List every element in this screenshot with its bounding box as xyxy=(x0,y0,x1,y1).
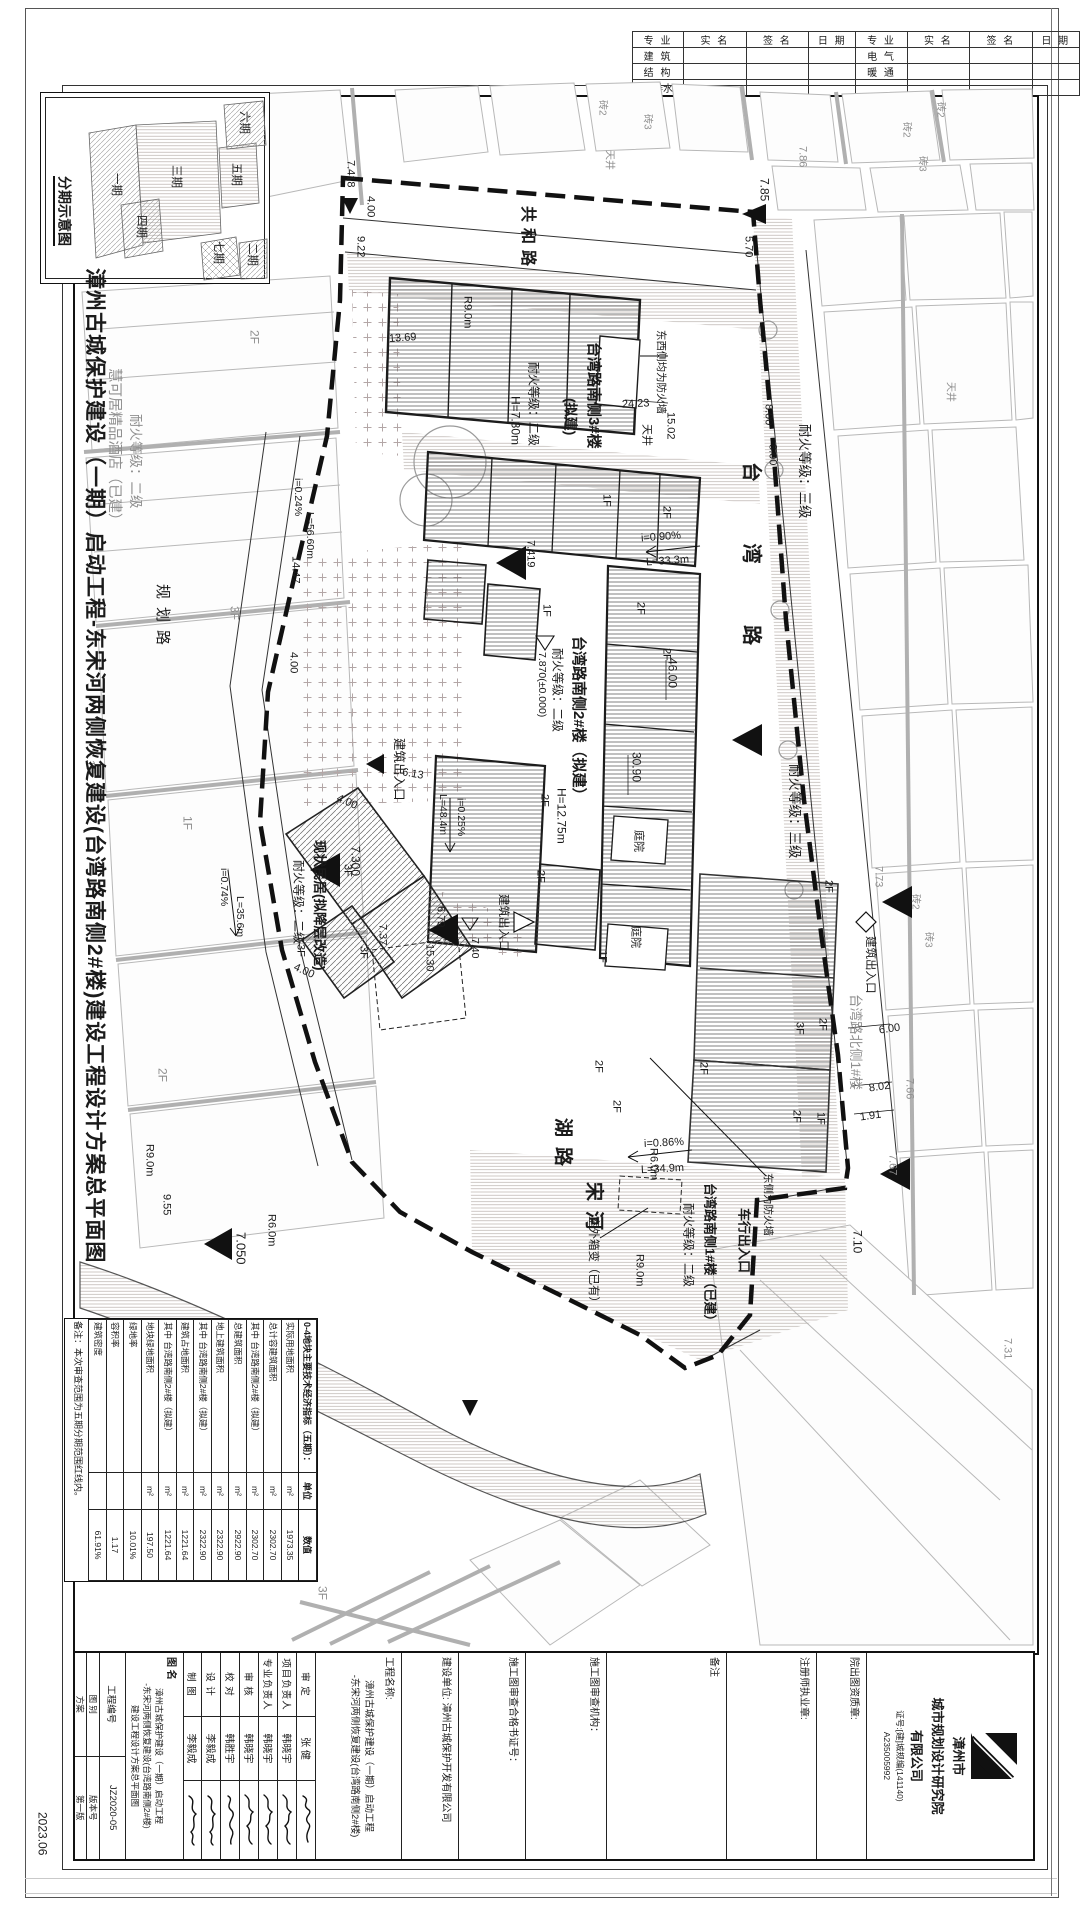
road-label-gonghe: 共和路 xyxy=(518,206,535,272)
floor-1f-b: 1F xyxy=(600,494,612,507)
level-786: 7.86 xyxy=(796,146,808,167)
remark-cell: 备注 xyxy=(606,1653,726,1859)
indicators-title: 0-4地块主要技术经济指标（五期）： xyxy=(299,1320,317,1473)
floor-2f-b1a: 2F xyxy=(816,1018,828,1031)
slope-l333: L=33.3m xyxy=(646,555,690,570)
bldg3-height: H=7.30m xyxy=(509,396,522,445)
level-785: 7.85 xyxy=(758,178,771,201)
phasing-inset-title: 分期示意图 xyxy=(53,176,72,246)
category-value: 方案 xyxy=(75,1653,86,1756)
hotel-fire-rating: 耐火等级：二级 xyxy=(128,414,142,509)
drawing-title-cell: 图 名 漳州古城保护建设（一期）启动工程 -东宋河两侧恢复建设(台湾路南侧2#楼… xyxy=(125,1653,183,1859)
indicators-table: 0-4地块主要技术经济指标（五期）： 单位 数值 实际用地面积m²1973.35… xyxy=(64,1318,318,1582)
brick3-east-b: 砖3 xyxy=(922,932,933,948)
plan-labels: 共和路 台 湾 路 规划路 湖路 宋河 台湾路南侧3#楼 (拟建) 耐火等级：二… xyxy=(0,0,1080,1906)
titleblock: 漳州市 城市规划设计研究院 有限公司 证号:[建]城规编(141140) A23… xyxy=(73,1651,1035,1861)
staff-row-xiangmu: 项目负责人韩晓宇 xyxy=(277,1653,296,1859)
slope-l484: L=48.4m xyxy=(437,794,448,835)
company-name-3: 有限公司 xyxy=(908,1730,927,1782)
floor-3f-grey-a: 3F xyxy=(228,606,241,620)
indicators-wrap: 0-4地块主要技术经济指标（五期）： 单位 数值 实际用地面积m²1973.35… xyxy=(64,1318,318,1582)
indicator-row: 其中 台湾路南侧2#楼（拟建）m²2322.90 xyxy=(194,1320,212,1581)
registered-seal-cell: 注册师执业章: xyxy=(726,1653,816,1859)
project-name-line2: -东宋河两侧恢复建设(台湾路南侧2#楼) xyxy=(349,1657,363,1855)
dim-1-91: 1.91 xyxy=(859,1110,882,1124)
bldg3-sub: (拟建) xyxy=(563,398,578,435)
floor-2f-c: 2F xyxy=(538,794,550,807)
lightwell-label: 天井 xyxy=(640,424,652,446)
signature-scribble xyxy=(223,1792,238,1848)
brick2-east-b: 砖2 xyxy=(934,102,945,118)
brick2-top-a: 砖2 xyxy=(596,100,607,116)
dim-46-00: 46.00 xyxy=(666,658,679,688)
review-org-cell: 施工图审查机构： xyxy=(525,1653,606,1859)
sheet-date: 2023.06 xyxy=(36,1812,49,1855)
drawing-title-line3: 建设工程设计方案总平面图 xyxy=(129,1657,141,1855)
indicator-row: 地上建筑面积m²2322.90 xyxy=(212,1320,230,1581)
level-740: 7.40 xyxy=(469,938,480,958)
floor-3f-b1: 3F xyxy=(793,1022,805,1035)
staff-row-shenhe: 审 核韩晓宇 xyxy=(239,1653,258,1859)
dim-30-90: 30.90 xyxy=(630,752,643,782)
side-title: 漳州古城保护建设（一期）启动工程-东宋河两侧恢复建设(台湾路南侧2#楼)建设工程… xyxy=(80,268,108,1340)
drawing-sheet: { "sig_table": { "headers": ["专 业","实 名"… xyxy=(0,0,1080,1906)
indicator-row: 实际用地面积m²1973.35 xyxy=(282,1320,300,1581)
radius-r90-c: R9.0m xyxy=(633,1254,645,1286)
signature-scribble xyxy=(185,1792,200,1848)
radius-r60-b: R6.0m xyxy=(265,1214,277,1246)
indicators-col-value: 数值 xyxy=(299,1510,317,1581)
staff-row-zhuanye: 专业负责人韩晓宇 xyxy=(258,1653,277,1859)
floor-2f-grey-b: 2F xyxy=(156,1068,169,1082)
dim-15-30: 15.30 xyxy=(423,944,435,972)
staff-row-shending: 审 定张 健 xyxy=(296,1653,315,1859)
north-bldg1-label: 台湾路北侧1#楼 xyxy=(848,994,862,1090)
project-name-label: 工程名称: xyxy=(383,1657,398,1855)
slope-i025: i=0.25% xyxy=(455,798,466,836)
indicator-row: 建筑占地面积m²1221.64 xyxy=(177,1320,195,1581)
floor-2f-b1b: 2F xyxy=(822,880,834,893)
bldg3-fire-rating: 耐火等级：二级 xyxy=(527,362,540,446)
level-731: 7.31 xyxy=(1001,1338,1013,1359)
level-7419: 7.419 xyxy=(524,540,536,568)
firewall-both-note: 东西侧均为防火墙 xyxy=(655,330,666,414)
slope-i074: i=0.74% xyxy=(218,868,229,906)
floor-3f-dwelling-a: 3F xyxy=(341,864,353,877)
version-value: 第一版 xyxy=(75,1757,86,1860)
indicator-row: 绿地率10.01% xyxy=(124,1320,142,1581)
bldg3-name: 台湾路南侧3#楼 xyxy=(585,342,601,449)
brick2-east-c: 砖2 xyxy=(909,894,920,910)
company-name-2: 城市规划设计研究院 xyxy=(929,1697,948,1814)
slope-l356: L=35.6m xyxy=(234,896,245,937)
floor-2f-e: 2F xyxy=(660,648,672,661)
floor-2f-a: 2F xyxy=(634,602,646,615)
phase-2-label: 二期 xyxy=(245,243,261,266)
level-767: 7.67 xyxy=(886,1154,898,1175)
transformer-label: 室外箱变（已有） xyxy=(587,1216,599,1308)
firewall-east-note: 东侧为防火墙 xyxy=(762,1173,773,1236)
floor-2f-b1c: 2F xyxy=(697,1062,709,1075)
company-cert-2: A235005992 xyxy=(882,1732,892,1780)
floor-1f-a: 1F xyxy=(540,604,552,617)
signature-scribble xyxy=(261,1792,276,1848)
version-label: 版本号 xyxy=(86,1757,99,1860)
dim-24-23: 24.23 xyxy=(622,398,650,411)
floor-1f-grey-b: 1F xyxy=(181,816,194,830)
entrance-west-label: 建筑出入口 xyxy=(392,738,405,801)
signature-scribble xyxy=(204,1792,219,1848)
dwellings-fire-rating: 耐火等级：二级 xyxy=(292,860,305,944)
signature-scribble xyxy=(280,1792,295,1848)
project-name-line1: 漳州古城保护建设（一期）启动工程 xyxy=(363,1657,377,1855)
level-710: 7.10 xyxy=(851,1230,864,1253)
slope-i024: i=0.24% xyxy=(292,478,303,516)
dim-6-79: 6.79 xyxy=(434,906,446,927)
level-7418: 7.418 xyxy=(344,160,356,188)
phasing-inset: 分期示意图 一期 三期 四期 五期 六期 七期 二期 xyxy=(40,92,270,284)
floor-2f-b1f: 2F xyxy=(790,1110,802,1123)
road-label-taiwan: 台 湾 路 xyxy=(740,462,761,673)
floor-2f-b: 2F xyxy=(660,506,672,519)
phase-1-label: 一期 xyxy=(109,173,125,196)
indicator-row: 总计容建筑面积m²2302.70 xyxy=(264,1320,282,1581)
floor-1f-b1: 1F xyxy=(814,1112,826,1125)
indicators-note: 备注：本次审查范围为五期分期范围红线内。 xyxy=(70,1319,89,1581)
bldg2-fire-rating: 耐火等级：二级 xyxy=(551,648,564,732)
hotel-name: 慧可居精品酒店（已建） xyxy=(106,368,121,528)
radius-r90-a: R9.0m xyxy=(461,296,473,328)
institute-seal-cell: 院出图资质章: xyxy=(816,1653,866,1859)
dim-9-55: 9.55 xyxy=(160,1194,172,1215)
dim-8-00-a: 8.00 xyxy=(762,404,774,425)
client-cell: 建设单位: 漳州古城保护开发有限公司 xyxy=(401,1653,459,1859)
courtyard-b: 庭院 xyxy=(632,830,644,852)
indicator-row: 地块绿地面积m²197.50 xyxy=(142,1320,160,1581)
level-773: 7.73 xyxy=(872,866,884,887)
project-number-label: 工程编号 xyxy=(100,1653,125,1757)
radius-r60-a: R6.0m xyxy=(647,1148,659,1180)
drawing-title-label: 图 名 xyxy=(165,1657,176,1680)
indicator-row: 其中 台湾路南侧2#楼（拟建）m²2302.70 xyxy=(247,1320,265,1581)
radius-r90-b: R9.0m xyxy=(143,1144,155,1176)
floor-3f-grey-b: 3F xyxy=(316,1586,329,1600)
phasing-inset-svg xyxy=(41,93,269,283)
floor-2f-d: 2F xyxy=(534,870,546,883)
dim-4-00-b: 4.00 xyxy=(335,793,359,812)
brick2-east-a: 砖2 xyxy=(900,122,911,138)
indicator-row: 总建筑面积m²2922.90 xyxy=(229,1320,247,1581)
project-number-value: JZ2020-05 xyxy=(100,1757,125,1860)
fire-rating-3-east-a: 耐火等级：三级 xyxy=(797,424,811,519)
phase-7-label: 七期 xyxy=(211,241,227,264)
category-label: 图 别 xyxy=(86,1653,99,1756)
dwellings-name: 现状民居(拟降层改造) xyxy=(312,840,326,971)
indicator-row: 其中 台湾路南侧2#楼（拟建）m²1221.64 xyxy=(159,1320,177,1581)
dim-4-00-a: 4.00 xyxy=(364,196,376,217)
lightwell-east: 天井 xyxy=(944,382,955,402)
drawing-title-line2: -东宋河两侧恢复建设(台湾路南侧2#楼) xyxy=(141,1657,153,1855)
category-version-cell: 图 别 方案 版本号 第一版 xyxy=(75,1653,99,1859)
floor-2f-grey-a: 2F xyxy=(248,330,261,344)
floor-2f-b1d: 2F xyxy=(592,1060,604,1073)
floor-3f-dwelling-b: 3F xyxy=(294,944,306,957)
indicator-row: 建筑密度61.91% xyxy=(89,1320,107,1581)
company-name-1: 漳州市 xyxy=(950,1736,969,1775)
fire-rating-3-east-b: 耐火等级：三级 xyxy=(787,764,801,859)
dim-5-70: 5.70 xyxy=(742,236,754,257)
signature-scribble xyxy=(299,1792,314,1848)
floor-3f-dwelling-c: 3F xyxy=(357,946,369,959)
entrance-south-label: 建筑出入口 xyxy=(497,894,509,952)
phase-4-label: 四期 xyxy=(134,215,150,238)
bldg2-name: 台湾路南侧2#楼（拟建） xyxy=(570,636,586,803)
dim-8-00-b: 8.00 xyxy=(766,444,778,465)
side-title-wrap: 漳州古城保护建设（一期）启动工程-东宋河两侧恢复建设(台湾路南侧2#楼)建设工程… xyxy=(80,268,108,1340)
floor-1f-b2: 1F xyxy=(596,950,608,963)
staff-row-sheji: 设 计李毅成 xyxy=(201,1653,220,1859)
dim-8-02: 8.02 xyxy=(868,1081,891,1095)
brick3-top: 砖3 xyxy=(641,114,652,130)
client-value: 漳州古城保护开发有限公司 xyxy=(440,1703,451,1823)
company-cell: 漳州市 城市规划设计研究院 有限公司 证号:[建]城规编(141140) A23… xyxy=(866,1653,1033,1859)
company-cert-1: 证号:[建]城规编(141140) xyxy=(894,1710,906,1801)
brick3-east: 砖3 xyxy=(916,156,927,172)
client-label: 建设单位: xyxy=(440,1657,451,1700)
dim-15-02: 15.02 xyxy=(664,412,676,440)
dim-4-00-d: 4.00 xyxy=(287,652,299,673)
road-label-guihua: 规划路 xyxy=(154,584,170,653)
phase-3-label: 三期 xyxy=(169,165,185,188)
bldg1-name: 台湾路南侧1#楼（已建） xyxy=(703,1183,717,1327)
phase-5-label: 五期 xyxy=(229,163,245,186)
staff-row-zhitu: 制 图李毅成 xyxy=(183,1653,202,1859)
slope-l566: L=56.60m xyxy=(304,512,315,559)
project-name-cell: 工程名称: 漳州古城保护建设（一期）启动工程 -东宋河两侧恢复建设(台湾路南侧2… xyxy=(315,1653,401,1859)
review-cert-cell: 施工图审查合格书证号： xyxy=(458,1653,525,1859)
dim-13-69: 13.69 xyxy=(389,332,417,345)
level-737: 7.37 xyxy=(376,924,388,945)
drawing-title-line1: 漳州古城保护建设（一期）启动工程 xyxy=(153,1657,165,1855)
vehicle-entrance-label: 车行出入口 xyxy=(737,1208,751,1273)
entrance-east-label: 建筑出入口 xyxy=(864,936,876,994)
dim-14-47: 14.47 xyxy=(289,556,301,584)
slope-i090: i=0.90% xyxy=(641,531,682,545)
phase-6-label: 六期 xyxy=(237,111,253,134)
project-number-cell: 工程编号 JZ2020-05 xyxy=(99,1653,125,1859)
titleblock-wrap: 漳州市 城市规划设计研究院 有限公司 证号:[建]城规编(141140) A23… xyxy=(73,1651,1035,1861)
indicator-row: 容积率1.17 xyxy=(107,1320,125,1581)
level-766: 7.66 xyxy=(903,1078,915,1099)
courtyard-a: 庭院 xyxy=(629,926,641,948)
dim-9-22: 9.22 xyxy=(354,236,366,257)
bldg1-fire-rating: 耐火等级：二级 xyxy=(682,1203,695,1287)
level-7050: 7.050 xyxy=(234,1232,248,1265)
signature-scribble xyxy=(242,1792,257,1848)
road-label-hulu: 湖路 xyxy=(552,1118,572,1176)
staff-row-jiaodui: 校 对韩胜宇 xyxy=(220,1653,239,1859)
level-7870: 7.870(±0.000) xyxy=(536,652,547,717)
indicators-col-unit: 单位 xyxy=(299,1473,317,1510)
lightwell-top: 天井 xyxy=(603,150,614,170)
company-logo xyxy=(971,1733,1017,1779)
dim-6-00: 6.00 xyxy=(878,1023,901,1037)
floor-2f-b1e: 2F xyxy=(610,1100,622,1113)
bldg2-height: H=12.75m xyxy=(555,788,568,844)
